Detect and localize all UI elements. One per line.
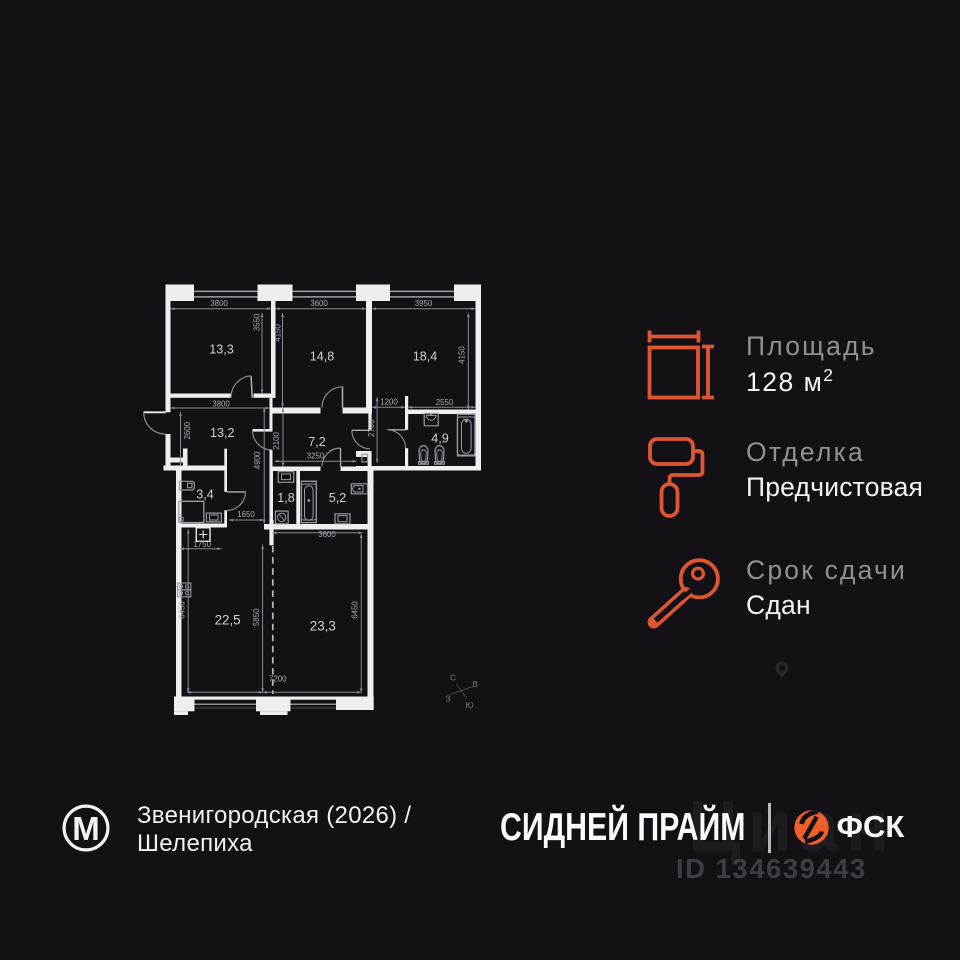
svg-text:2100: 2100 bbox=[272, 432, 281, 450]
svg-text:13,2: 13,2 bbox=[210, 426, 235, 440]
svg-text:1750: 1750 bbox=[193, 540, 211, 549]
svg-text:5850: 5850 bbox=[252, 608, 261, 626]
svg-text:Ю: Ю bbox=[466, 701, 474, 710]
svg-text:23,3: 23,3 bbox=[310, 618, 336, 633]
svg-text:13,3: 13,3 bbox=[209, 343, 234, 357]
svg-text:3250: 3250 bbox=[307, 451, 325, 460]
svg-text:7200: 7200 bbox=[269, 674, 287, 683]
svg-text:С: С bbox=[450, 674, 456, 683]
svg-text:14,8: 14,8 bbox=[310, 350, 335, 364]
svg-text:3800: 3800 bbox=[210, 299, 228, 308]
svg-text:2700: 2700 bbox=[367, 419, 376, 437]
svg-text:3550: 3550 bbox=[253, 313, 262, 331]
svg-text:3,4: 3,4 bbox=[196, 487, 214, 501]
svg-text:4900: 4900 bbox=[253, 451, 262, 469]
svg-text:3950: 3950 bbox=[415, 299, 433, 308]
svg-text:В: В bbox=[473, 680, 478, 689]
svg-text:6450: 6450 bbox=[178, 601, 187, 619]
svg-text:1,8: 1,8 bbox=[277, 491, 295, 505]
svg-text:4150: 4150 bbox=[273, 324, 282, 342]
svg-text:4,9: 4,9 bbox=[431, 432, 449, 446]
svg-text:18,4: 18,4 bbox=[413, 350, 438, 364]
svg-text:7,2: 7,2 bbox=[308, 435, 326, 449]
svg-text:22,5: 22,5 bbox=[215, 613, 241, 628]
svg-text:3600: 3600 bbox=[310, 299, 328, 308]
svg-text:4150: 4150 bbox=[457, 346, 466, 364]
svg-text:3800: 3800 bbox=[212, 400, 230, 409]
svg-text:1200: 1200 bbox=[380, 397, 398, 406]
svg-text:М: М bbox=[72, 810, 100, 847]
svg-text:3600: 3600 bbox=[318, 530, 336, 539]
svg-text:2550: 2550 bbox=[436, 398, 454, 407]
svg-text:1650: 1650 bbox=[237, 510, 255, 519]
svg-text:З: З bbox=[445, 695, 450, 704]
svg-text:2600: 2600 bbox=[183, 421, 192, 439]
svg-text:5,2: 5,2 bbox=[329, 491, 347, 505]
svg-text:6450: 6450 bbox=[351, 601, 360, 619]
